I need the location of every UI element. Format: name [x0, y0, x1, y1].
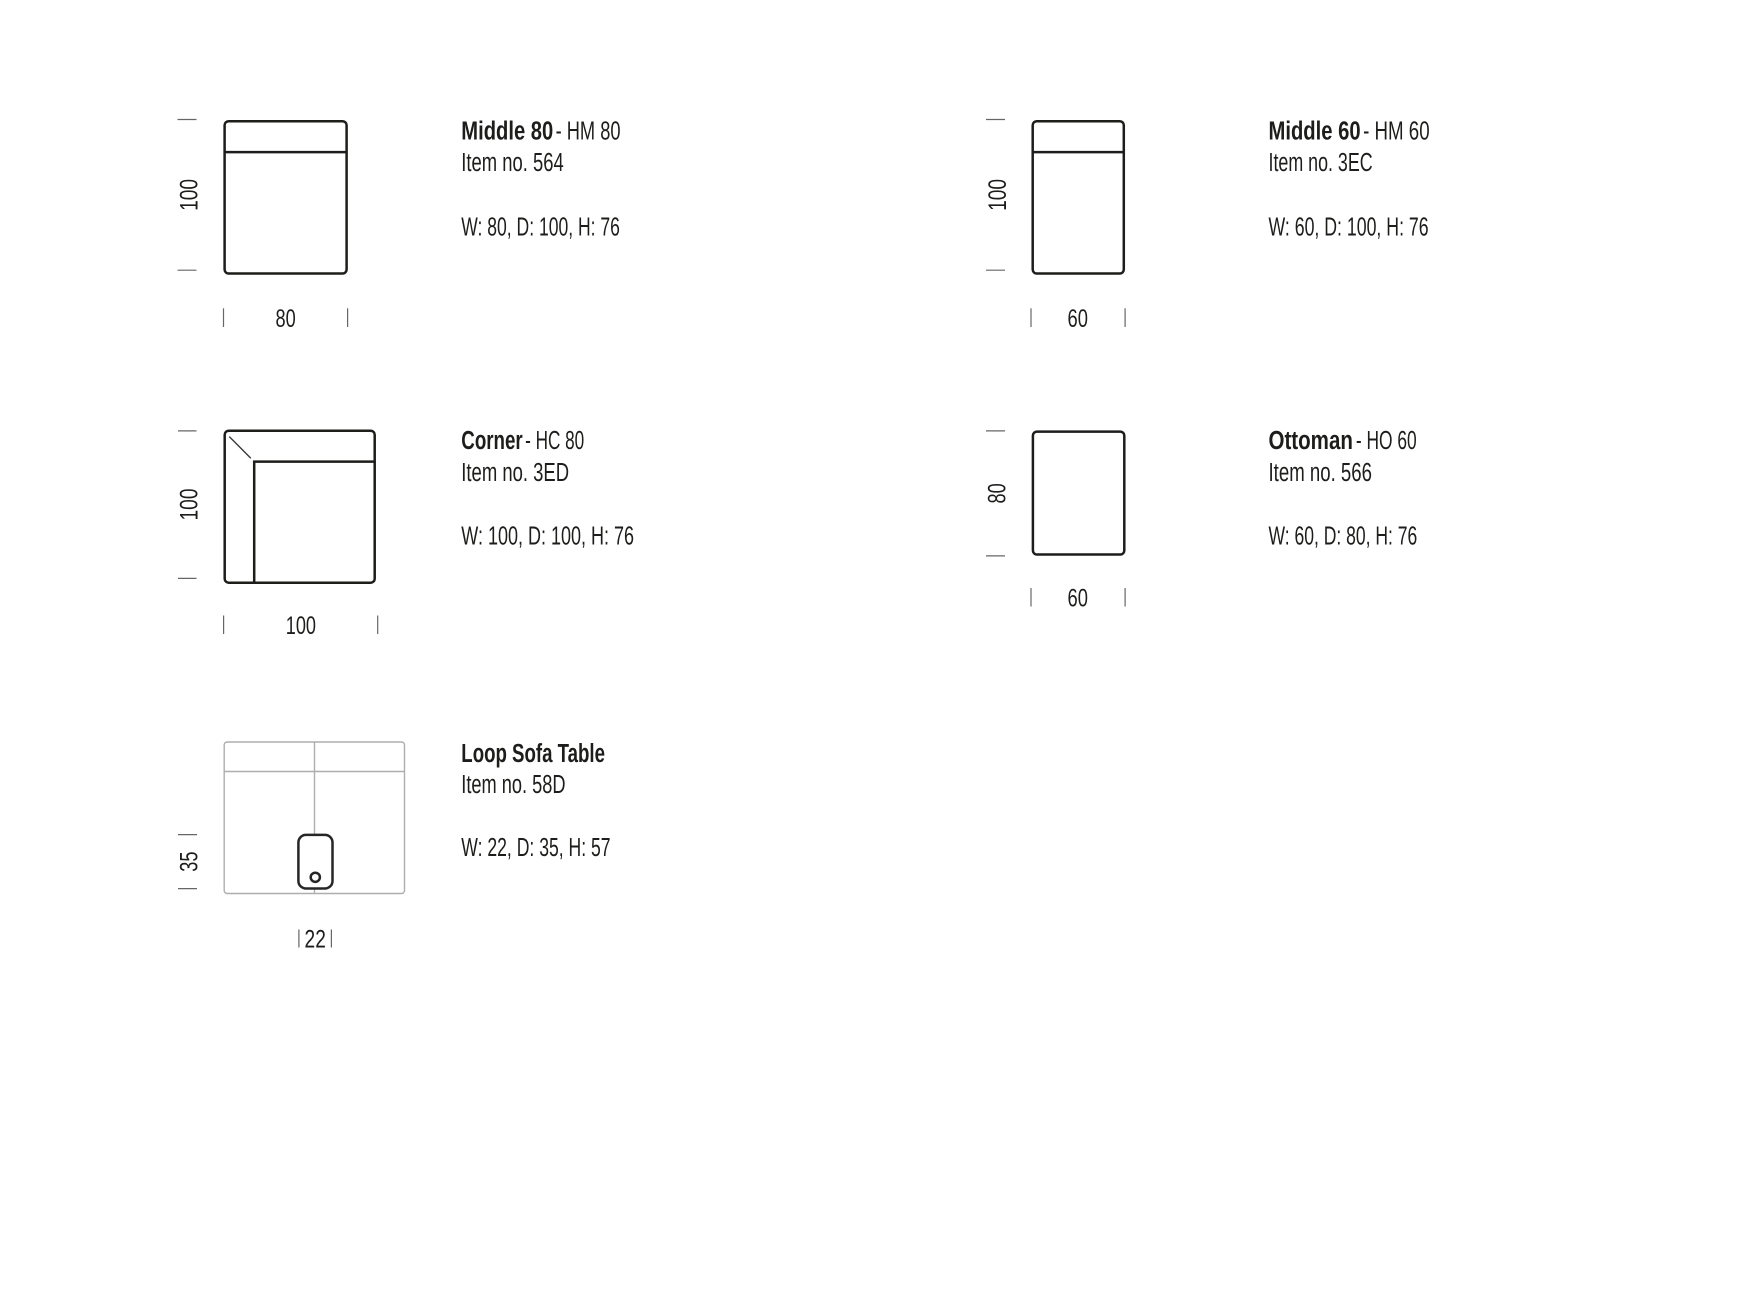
- svg-text:80: 80: [984, 483, 1012, 503]
- svg-text:100: 100: [176, 489, 204, 521]
- svg-text:W: 100, D: 100, H: 76: W: 100, D: 100, H: 76: [461, 522, 634, 550]
- svg-text:W: 80, D: 100, H: 76: W: 80, D: 100, H: 76: [461, 213, 620, 241]
- svg-text:60: 60: [1068, 305, 1088, 333]
- svg-text:W: 60, D: 80, H: 76: W: 60, D: 80, H: 76: [1269, 522, 1418, 550]
- svg-text:Loop Sofa Table: Loop Sofa Table: [461, 740, 605, 768]
- svg-text:80: 80: [276, 305, 296, 333]
- svg-text:Item no. 3ED: Item no. 3ED: [461, 459, 569, 487]
- svg-text:Item no. 3EC: Item no. 3EC: [1269, 149, 1373, 177]
- svg-text:Middle 60: Middle 60: [1269, 118, 1361, 146]
- svg-text:Ottoman: Ottoman: [1269, 427, 1353, 455]
- svg-text:Middle 80: Middle 80: [461, 118, 553, 146]
- svg-text:W: 22, D: 35, H: 57: W: 22, D: 35, H: 57: [461, 834, 610, 862]
- svg-text:100: 100: [286, 612, 316, 640]
- svg-text:60: 60: [1068, 585, 1088, 613]
- svg-text:- HM 60: - HM 60: [1363, 118, 1430, 146]
- svg-text:100: 100: [175, 179, 203, 211]
- svg-text:Item no. 566: Item no. 566: [1269, 459, 1373, 487]
- svg-text:22: 22: [305, 926, 326, 954]
- svg-text:Item no. 58D: Item no. 58D: [461, 771, 565, 799]
- svg-text:- HM 80: - HM 80: [556, 118, 621, 146]
- svg-text:- HO 60: - HO 60: [1356, 427, 1417, 455]
- svg-text:Item no. 564: Item no. 564: [461, 149, 563, 177]
- svg-text:100: 100: [984, 179, 1012, 211]
- svg-text:- HC 80: - HC 80: [525, 427, 584, 455]
- svg-text:W: 60, D: 100, H: 76: W: 60, D: 100, H: 76: [1269, 213, 1429, 241]
- svg-text:Corner: Corner: [461, 427, 522, 455]
- svg-text:35: 35: [176, 852, 204, 872]
